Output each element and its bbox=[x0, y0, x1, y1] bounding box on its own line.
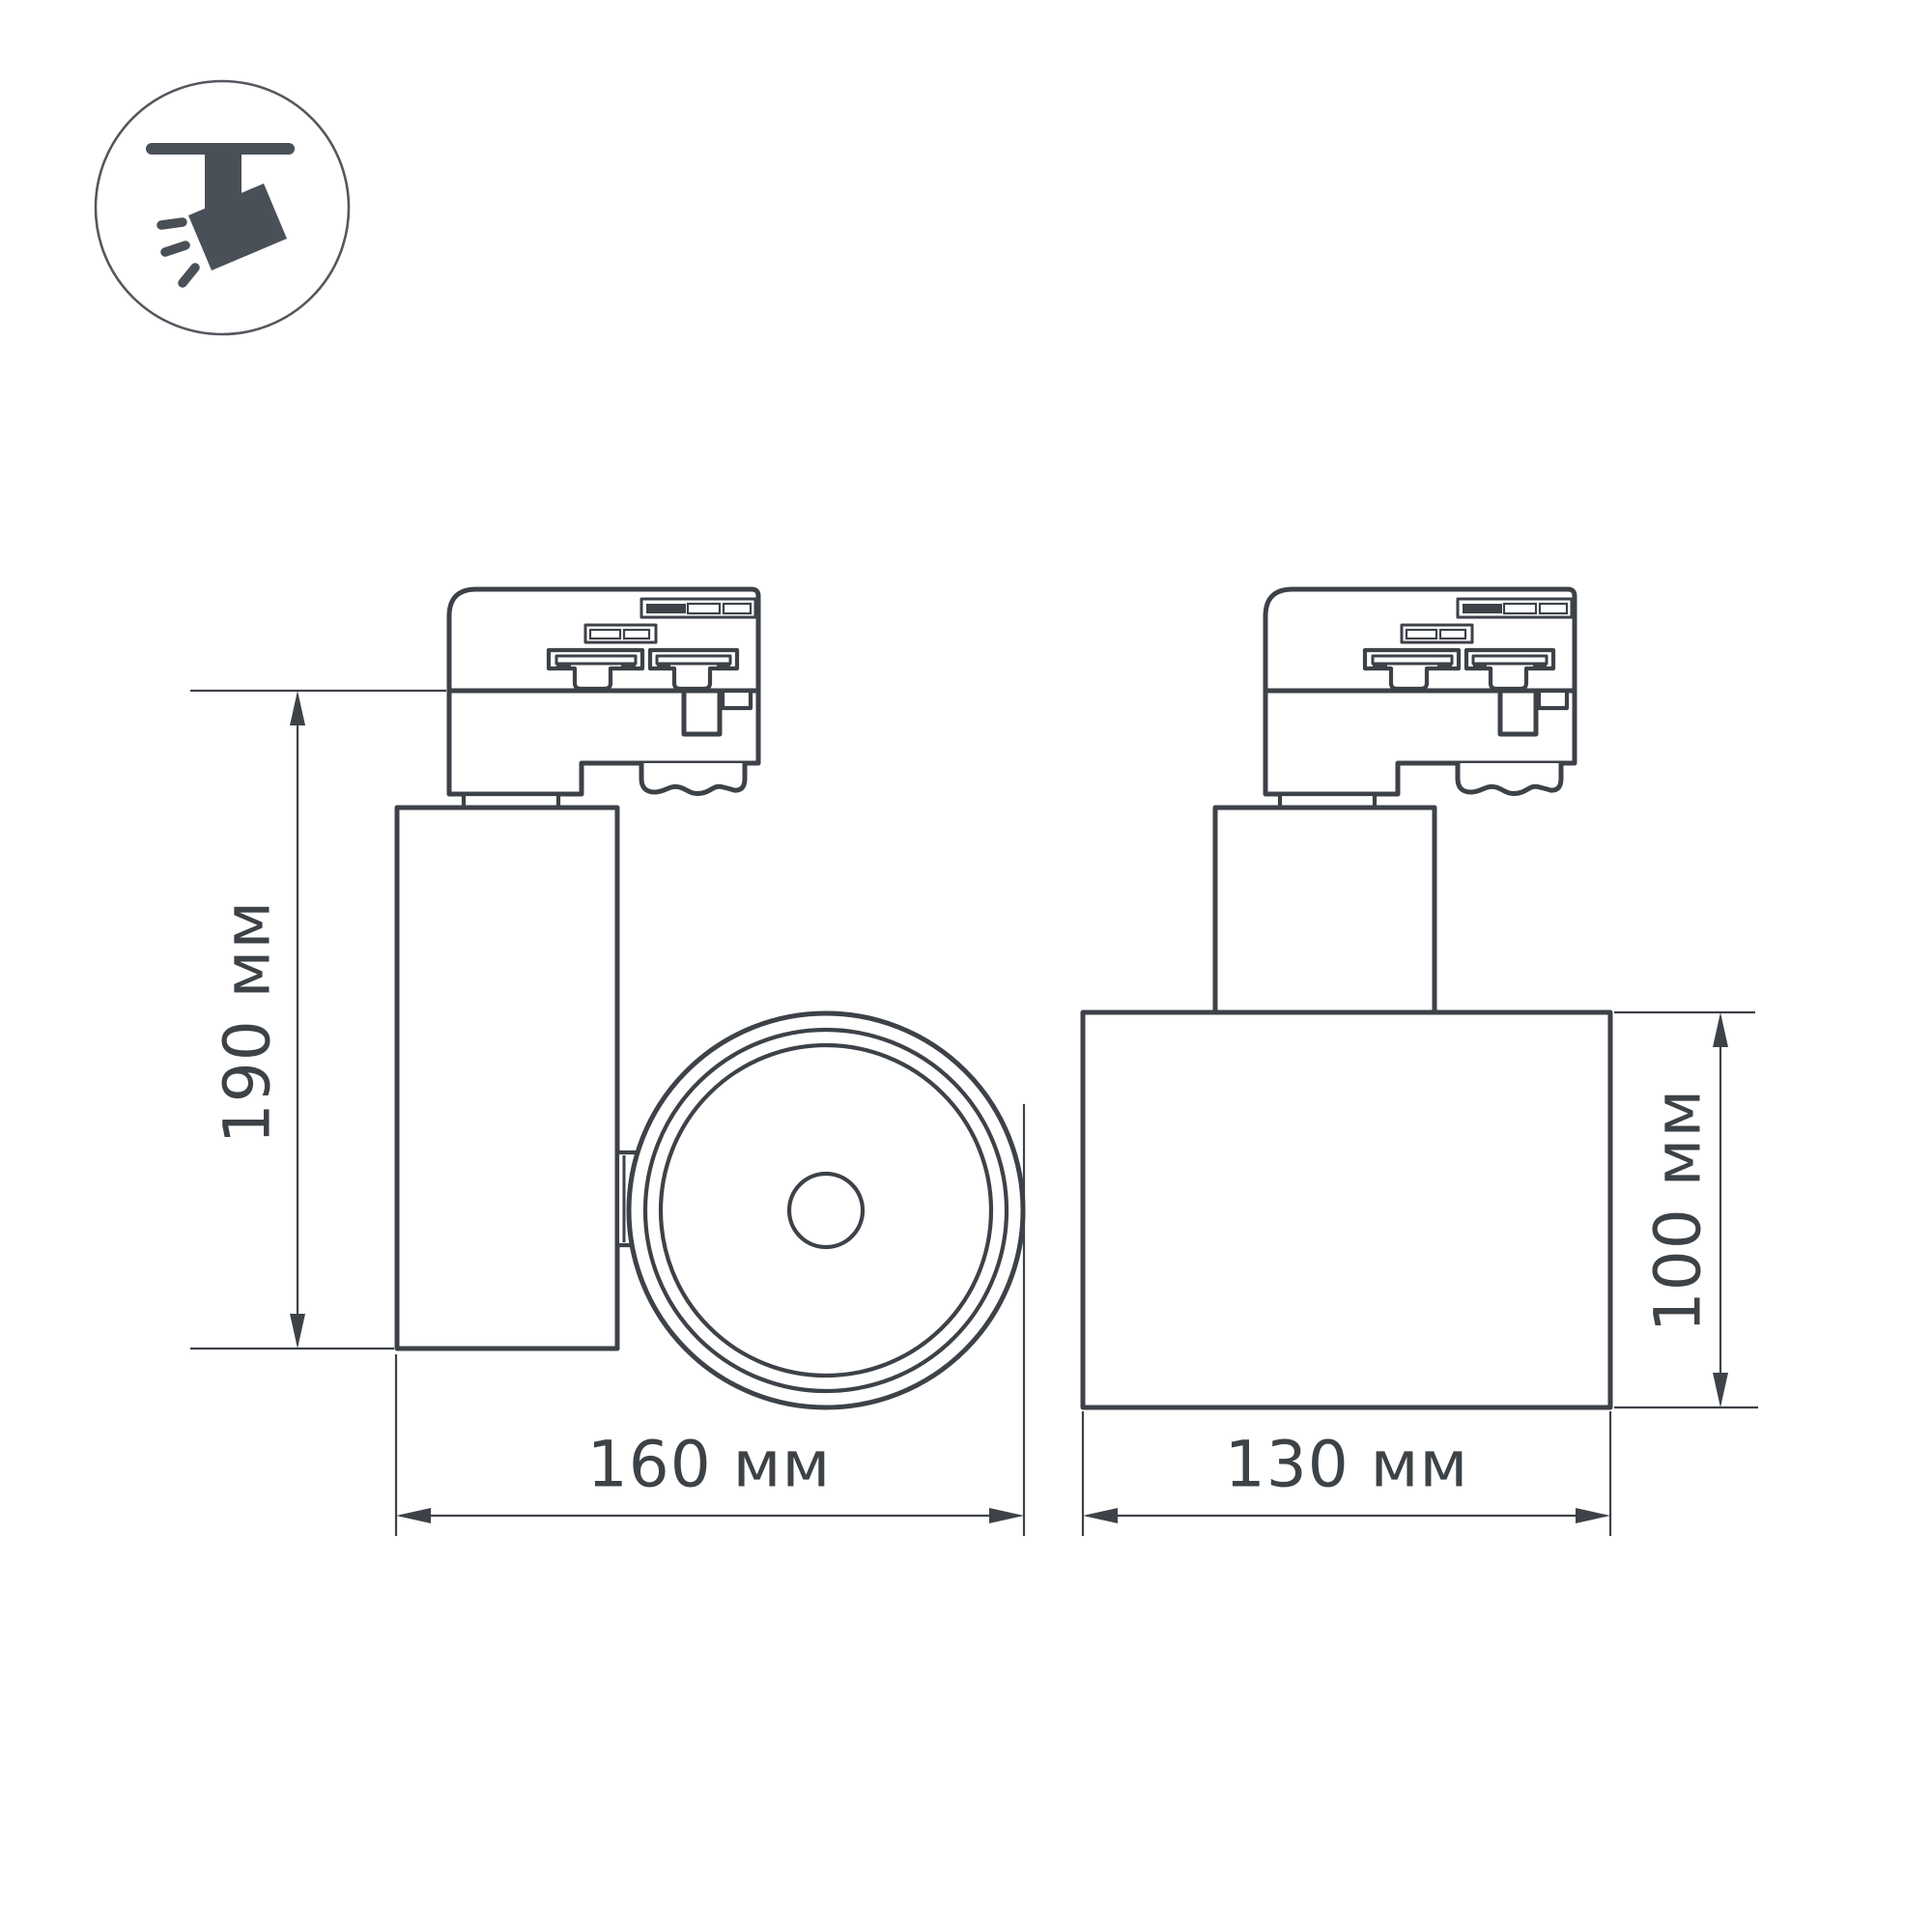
dimension-label-width: 130 мм bbox=[1225, 1428, 1469, 1502]
side-view bbox=[397, 589, 1023, 1407]
arrowhead-up bbox=[1713, 1012, 1728, 1047]
dimension-label-height: 190 мм bbox=[211, 900, 285, 1145]
icon-light-ray bbox=[183, 268, 195, 283]
icon-lamp-head bbox=[188, 184, 287, 270]
lens-bezel-outer bbox=[629, 1013, 1023, 1407]
icon-light-ray bbox=[161, 222, 183, 225]
arrowhead-right bbox=[1576, 1508, 1610, 1523]
mount-stem-front bbox=[1215, 808, 1435, 1016]
lamp-body-side bbox=[397, 808, 617, 1349]
icon-light-ray bbox=[165, 245, 185, 252]
drawing-page: 190 мм 160 мм 130 мм 100 мм bbox=[0, 0, 1932, 1932]
dimension-width: 130 мм bbox=[1083, 1411, 1610, 1536]
track-adapter-side bbox=[449, 589, 758, 810]
arrowhead-right bbox=[989, 1508, 1024, 1523]
arrowhead-left bbox=[396, 1508, 431, 1523]
dimension-body-height: 100 мм bbox=[1614, 1012, 1758, 1407]
technical-drawing: 190 мм 160 мм 130 мм 100 мм bbox=[0, 0, 1932, 1932]
front-view bbox=[1083, 589, 1610, 1407]
track-adapter-front bbox=[1265, 589, 1575, 810]
lamp-body-front bbox=[1083, 1012, 1610, 1407]
arrowhead-down bbox=[1713, 1373, 1728, 1407]
dimension-label-body-height: 100 мм bbox=[1641, 1089, 1716, 1333]
arrowhead-up bbox=[290, 691, 305, 725]
track-spotlight-icon bbox=[96, 81, 349, 334]
arrowhead-down bbox=[290, 1314, 305, 1349]
arrowhead-left bbox=[1083, 1508, 1118, 1523]
dimension-label-length: 160 мм bbox=[587, 1428, 832, 1502]
